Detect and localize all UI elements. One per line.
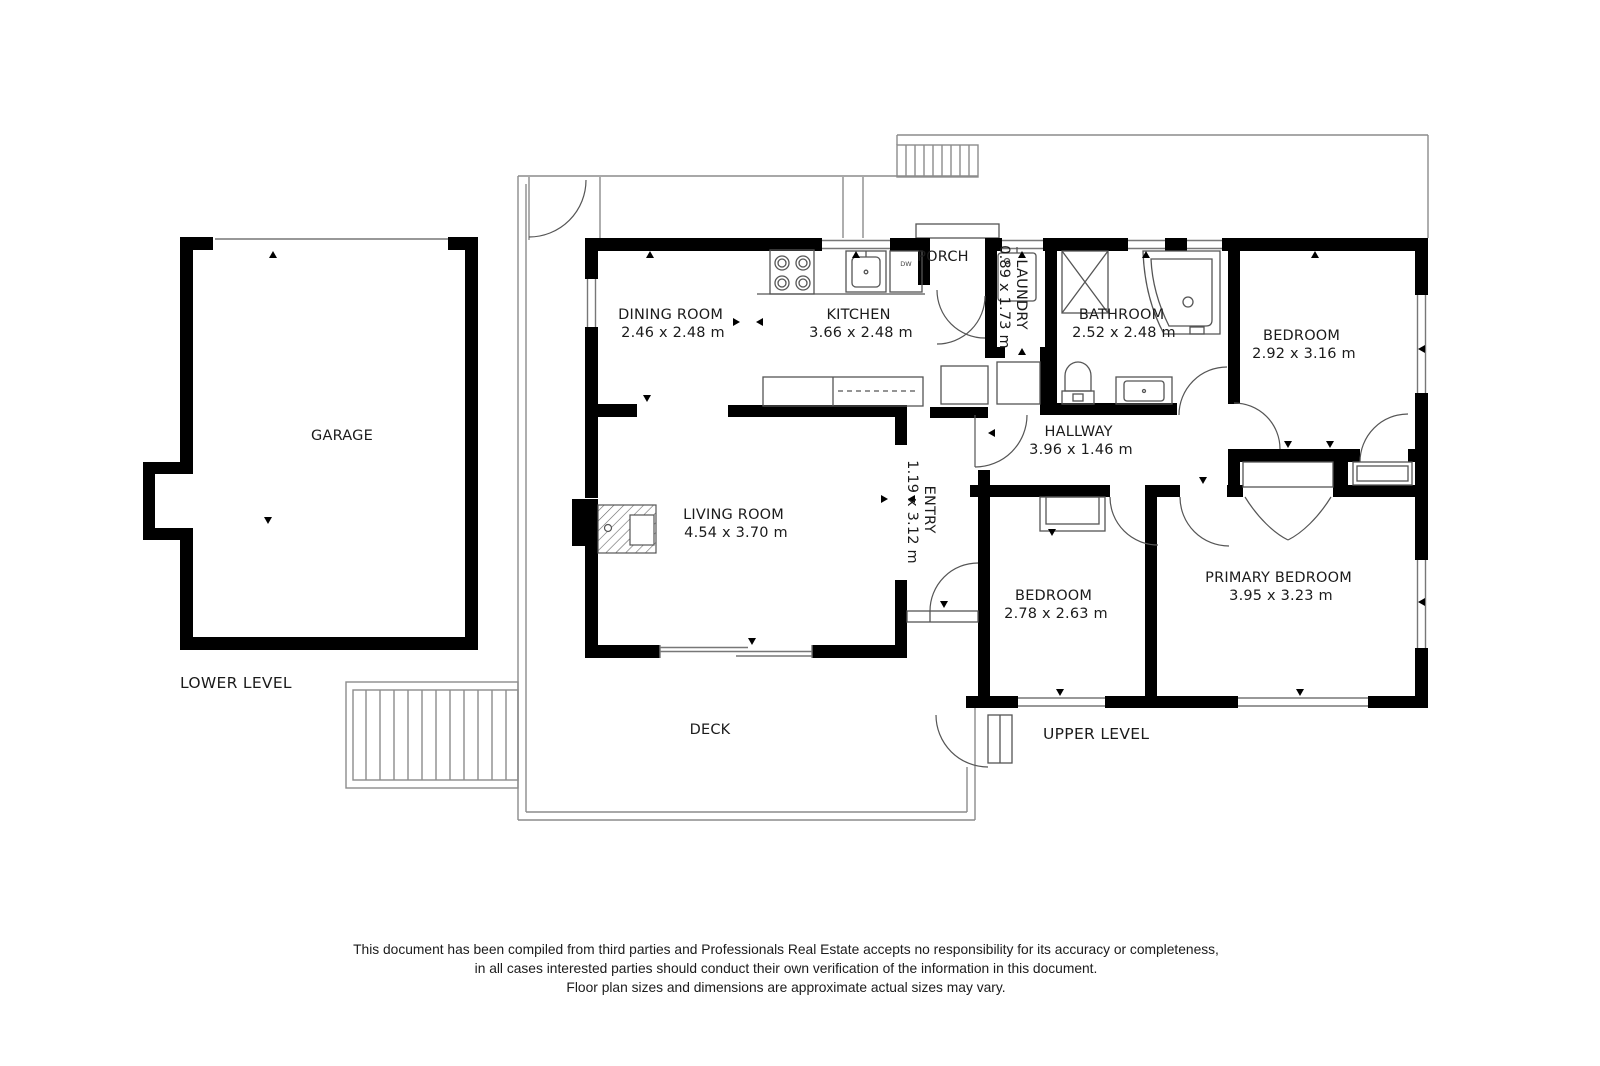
label-entry: ENTRY 1.19 x 3.12 m bbox=[904, 460, 937, 564]
stairs-upper bbox=[897, 145, 978, 177]
hallway-door-arc bbox=[975, 415, 1027, 467]
porch-roof-outline bbox=[916, 224, 999, 238]
disclaimer-line-2: in all cases interested parties should c… bbox=[475, 961, 1098, 976]
porch-door-arc-2 bbox=[937, 296, 985, 344]
vanity-sink-icon bbox=[1116, 377, 1172, 404]
label-lower-level: LOWER LEVEL bbox=[180, 674, 292, 692]
sliding-door-living bbox=[660, 645, 812, 658]
linen-closet bbox=[997, 362, 1040, 404]
window-bathroom-north-1 bbox=[1128, 238, 1165, 251]
label-primary-bedroom: PRIMARY BEDROOM 3.95 x 3.23 m bbox=[1205, 570, 1357, 604]
deck-door-arc-topleft bbox=[529, 180, 586, 237]
bedroom-closet bbox=[1040, 497, 1105, 531]
toilet-icon bbox=[1062, 362, 1094, 404]
dishwasher-label: DW bbox=[900, 260, 912, 268]
floor-plan-canvas: DW bbox=[0, 0, 1600, 1066]
label-hallway: HALLWAY 3.96 x 1.46 m bbox=[1029, 424, 1133, 458]
room-labels: GARAGE DINING ROOM 2.46 x 2.48 m KITCHEN… bbox=[180, 245, 1357, 743]
front-door-sidelight bbox=[907, 611, 978, 622]
window-bedroom-south bbox=[1018, 696, 1105, 708]
kitchen-sink-icon bbox=[846, 251, 886, 292]
floor-plan-svg: DW bbox=[0, 0, 1600, 1066]
deck-roof-outline bbox=[346, 135, 1428, 820]
disclaimer-line-3: Floor plan sizes and dimensions are appr… bbox=[566, 980, 1005, 995]
bedroom-walkin-closet bbox=[1353, 462, 1412, 485]
window-kitchen-north bbox=[822, 238, 890, 251]
label-laundry: LAUNDRY 0.89 x 1.73 m bbox=[996, 245, 1029, 349]
label-deck: DECK bbox=[690, 722, 731, 738]
stove-icon bbox=[770, 250, 814, 294]
window-primary-south bbox=[1238, 696, 1368, 708]
disclaimer-line-1: This document has been compiled from thi… bbox=[353, 942, 1219, 957]
porch-door-arc-1 bbox=[937, 290, 985, 338]
label-dining-room: DINING ROOM 2.46 x 2.48 m bbox=[618, 307, 728, 341]
window-dining-west bbox=[585, 279, 598, 327]
wardrobe-closet bbox=[1243, 462, 1333, 487]
label-bathroom: BATHROOM 2.52 x 2.48 m bbox=[1072, 307, 1176, 341]
label-kitchen: KITCHEN 3.66 x 2.48 m bbox=[809, 307, 913, 341]
window-bathroom-north-2 bbox=[1187, 238, 1222, 251]
bedroom-closet-door-arc bbox=[1360, 414, 1408, 462]
disclaimer: This document has been compiled from thi… bbox=[353, 942, 1219, 995]
label-living-room: LIVING ROOM 4.54 x 3.70 m bbox=[683, 507, 789, 541]
window-bedroom-east bbox=[1415, 295, 1428, 393]
label-bedroom-bottom: BEDROOM 2.78 x 2.63 m bbox=[1004, 588, 1108, 622]
primary-door-arc bbox=[1180, 497, 1229, 546]
label-porch: PORCH bbox=[917, 249, 969, 265]
pantry-closet bbox=[941, 366, 988, 404]
shower-icon bbox=[1062, 251, 1108, 313]
bathroom-door-arc bbox=[1179, 367, 1227, 415]
label-bedroom-top: BEDROOM 2.92 x 3.16 m bbox=[1252, 328, 1356, 362]
label-upper-level: UPPER LEVEL bbox=[1043, 725, 1149, 743]
kitchen-peninsula bbox=[763, 377, 923, 406]
label-garage: GARAGE bbox=[311, 428, 373, 444]
bedroom-top-door-arc bbox=[1234, 403, 1280, 449]
fireplace-icon bbox=[598, 505, 656, 553]
front-door-arc bbox=[930, 563, 978, 611]
wardrobe-door-arcs bbox=[1245, 497, 1331, 540]
deck-side-door bbox=[936, 715, 1012, 767]
stairs-lower bbox=[346, 682, 518, 788]
